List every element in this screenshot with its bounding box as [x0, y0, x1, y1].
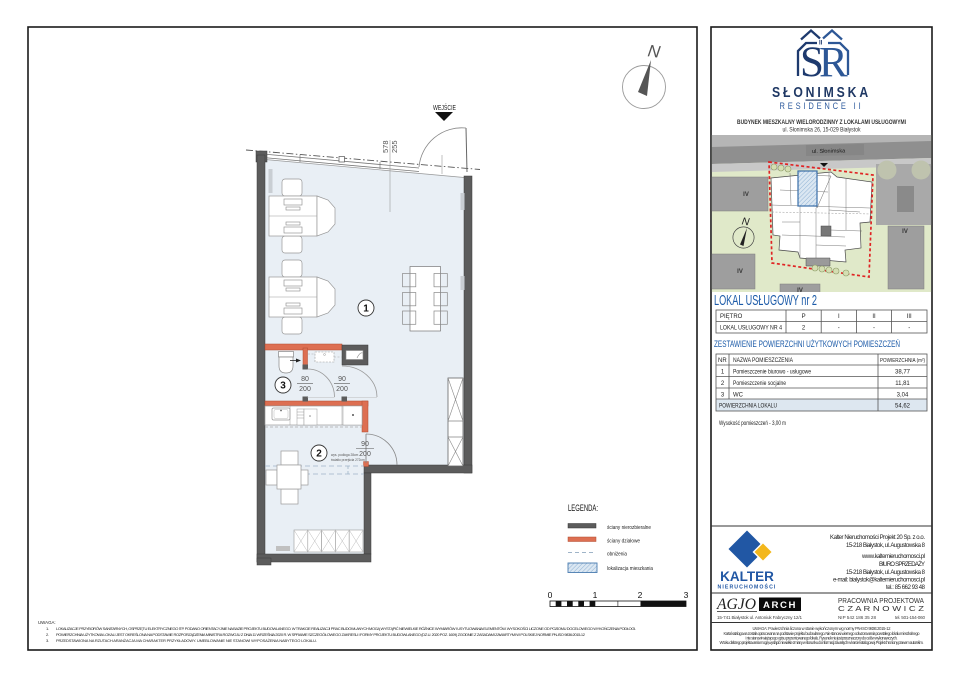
svg-text:ZESTAWIENIE POWIERZCHNI UŻYTKO: ZESTAWIENIE POWIERZCHNI UŻYTKOWYCH POMIE… — [714, 338, 900, 349]
svg-text:-: - — [873, 326, 875, 332]
svg-text:ściany działowe: ściany działowe — [607, 539, 640, 545]
svg-text:2: 2 — [638, 590, 643, 600]
svg-text:IV: IV — [737, 269, 743, 275]
svg-text:ARCH: ARCH — [763, 600, 797, 611]
svg-text:0: 0 — [548, 590, 553, 600]
svg-text:LOKAL USŁUGOWY nr 2: LOKAL USŁUGOWY nr 2 — [714, 293, 817, 309]
svg-text:Pomieszczenie biurowo - usługo: Pomieszczenie biurowo - usługowe — [733, 370, 812, 376]
svg-text:NR: NR — [718, 358, 727, 364]
svg-text:54,62: 54,62 — [895, 404, 911, 410]
svg-text:Pomieszczenie socjalne: Pomieszczenie socjalne — [733, 381, 787, 387]
svg-text:UWAGA:: UWAGA: — [38, 620, 56, 625]
svg-text:PRZEDSTAWIONA NA RZUTACH ARANŻ: PRZEDSTAWIONA NA RZUTACH ARANŻACJA MA CH… — [56, 638, 317, 643]
svg-text:Wysokość pomieszczeń - 3,00 m: Wysokość pomieszczeń - 3,00 m — [719, 420, 786, 427]
svg-text:POWIERZCHNIA UŻYTKOWA LOKALI J: POWIERZCHNIA UŻYTKOWA LOKALI JEST OKREŚL… — [56, 632, 586, 637]
svg-text:NIP 542 186 35 28: NIP 542 186 35 28 — [838, 615, 876, 620]
svg-text:3.: 3. — [46, 638, 49, 643]
svg-text:NAZWA POMIESZCZENIA: NAZWA POMIESZCZENIA — [733, 358, 793, 364]
svg-text:III: III — [907, 314, 912, 320]
svg-text:IV: IV — [743, 192, 749, 198]
svg-text:578: 578 — [381, 140, 390, 153]
svg-text:15-741 Białystok ul. Antoniu: 15-741 Białystok ul. Antoniuk Fabryczny … — [717, 615, 802, 620]
svg-text:11,81: 11,81 — [895, 381, 910, 387]
svg-text:II: II — [872, 314, 876, 320]
svg-text:tel.: 85 662 93 48: tel.: 85 662 93 48 — [886, 585, 926, 591]
svg-text:P: P — [802, 314, 806, 320]
svg-text:C Z A R N O W I C Z: C Z A R N O W I C Z — [838, 606, 925, 613]
svg-text:KALTER: KALTER — [720, 569, 774, 584]
svg-text:Kalter Nieruchomości Projekt 2: Kalter Nieruchomości Projekt 20 Sp. z o.… — [830, 535, 925, 541]
svg-text:BIURO SPRZEDAŻY: BIURO SPRZEDAŻY — [879, 561, 925, 568]
svg-text:W toku dalszego projektowania: W toku dalszego projektowania mogą wystą… — [720, 640, 924, 645]
svg-text:200: 200 — [299, 386, 311, 393]
svg-text:PRACOWNIA PROJEKTOWA: PRACOWNIA PROJEKTOWA — [838, 598, 924, 605]
svg-text:lokalizacja mieszkania: lokalizacja mieszkania — [607, 566, 654, 572]
svg-text:LEGENDA:: LEGENDA: — [568, 503, 598, 513]
svg-text:LOKAL USŁUGOWY NR 4: LOKAL USŁUGOWY NR 4 — [720, 326, 783, 332]
svg-text:WEJŚCIE: WEJŚCIE — [433, 103, 456, 112]
svg-text:1: 1 — [363, 304, 369, 315]
svg-text:3,04: 3,04 — [897, 393, 909, 399]
svg-text:38,77: 38,77 — [895, 370, 911, 376]
svg-text:IV: IV — [902, 229, 908, 235]
svg-text:WC: WC — [733, 393, 744, 399]
svg-text:3: 3 — [280, 381, 286, 392]
svg-text:ul. Słonimska 26, 15-029 Biały: ul. Słonimska 26, 15-029 Białystok — [783, 127, 862, 134]
svg-text:e-mail: bialystok@kalternieruc: e-mail: bialystok@kalternieruchomosci.pl — [833, 578, 925, 584]
svg-text:obniżenia: obniżenia — [607, 552, 628, 558]
svg-text:255: 255 — [390, 140, 399, 153]
svg-text:POWIERZCHNIA (m²): POWIERZCHNIA (m²) — [880, 358, 925, 364]
svg-text:ściany nierozbieralne: ściany nierozbieralne — [607, 525, 651, 531]
svg-text:90: 90 — [361, 441, 369, 448]
svg-text:ul. Słonimska: ul. Słonimska — [812, 148, 846, 155]
svg-text:90: 90 — [338, 376, 346, 383]
svg-text:1.: 1. — [46, 626, 49, 631]
svg-text:NIERUCHOMOŚCI: NIERUCHOMOŚCI — [718, 584, 777, 591]
svg-text:R: R — [819, 40, 848, 87]
svg-text:BUDYNEK MIESZKALNY WIELORODZIN: BUDYNEK MIESZKALNY WIELORODZINNY Z LOKAL… — [737, 119, 906, 126]
svg-text:15-218 Białystok, ul. Augustow: 15-218 Białystok, ul. Augustowska 8 — [846, 570, 926, 576]
svg-text:PIĘTRO: PIĘTRO — [720, 314, 743, 320]
svg-text:3: 3 — [684, 590, 689, 600]
svg-text:wys. podłoga 28cm: wys. podłoga 28cm — [331, 453, 359, 457]
svg-text:1: 1 — [593, 590, 598, 600]
svg-text:2.: 2. — [46, 632, 49, 637]
svg-text:200: 200 — [336, 386, 348, 393]
svg-text:-: - — [908, 326, 910, 332]
svg-text:POWIERZCHNIA LOKALU: POWIERZCHNIA LOKALU — [719, 404, 777, 410]
svg-text:-: - — [838, 326, 840, 332]
svg-text:tel. 501-154-060: tel. 501-154-060 — [895, 615, 925, 620]
svg-text:15-218 Białystok, ul. Augustow: 15-218 Białystok, ul. Augustowska 8 — [846, 543, 926, 549]
svg-text:80: 80 — [301, 376, 309, 383]
svg-text:RESIDENCE II: RESIDENCE II — [780, 101, 864, 112]
svg-text:2: 2 — [316, 449, 322, 460]
svg-text:światło przejścia 272cm: światło przejścia 272cm — [331, 458, 365, 462]
svg-text:AGJO: AGJO — [716, 596, 756, 613]
svg-text:www.kalternieruchomosci.pl: www.kalternieruchomosci.pl — [861, 554, 925, 560]
svg-text:200: 200 — [359, 451, 371, 458]
svg-text:LOKALIZACJE PRZYBORÓW SANITARN: LOKALIZACJE PRZYBORÓW SANITARNYCH, OSPRZ… — [56, 626, 636, 631]
svg-text:SŁONIMSKA: SŁONIMSKA — [772, 85, 871, 101]
